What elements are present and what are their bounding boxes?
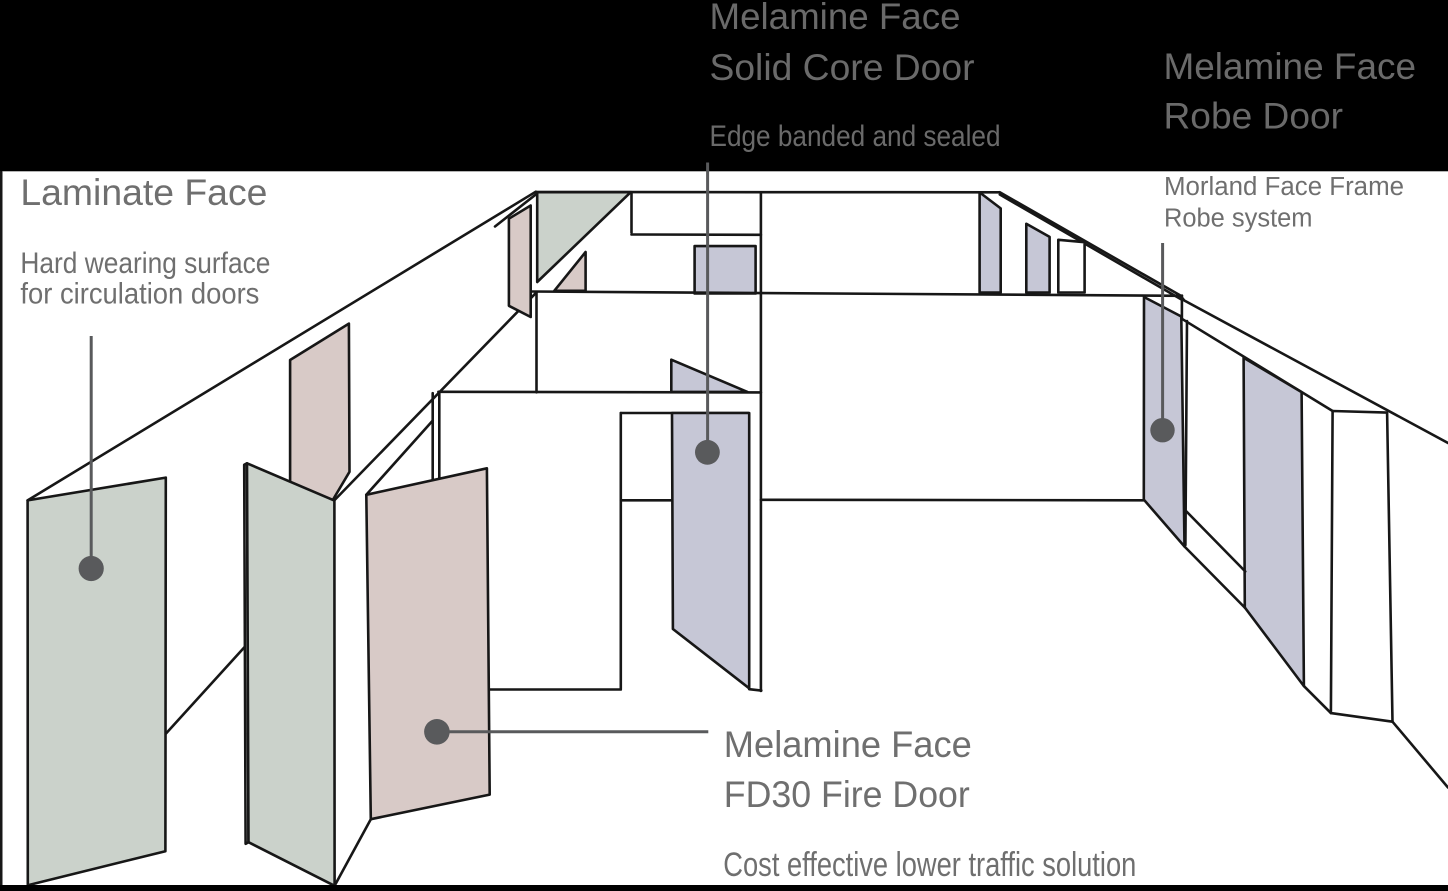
svg-text:Robe Door: Robe Door (1164, 96, 1344, 137)
svg-text:FD30 Fire Door: FD30 Fire Door (724, 774, 970, 815)
svg-text:Morland Face Frame: Morland Face Frame (1164, 173, 1404, 201)
svg-text:Hard wearing surface: Hard wearing surface (20, 247, 270, 280)
svg-text:Melamine Face: Melamine Face (710, 0, 961, 37)
svg-text:Cost effective lower traffic s: Cost effective lower traffic solution (723, 846, 1136, 884)
svg-text:Edge banded and sealed: Edge banded and sealed (710, 120, 1001, 153)
svg-text:Laminate Face: Laminate Face (20, 172, 267, 213)
svg-text:Melamine Face: Melamine Face (724, 724, 972, 765)
svg-text:for circulation doors: for circulation doors (20, 278, 259, 311)
svg-text:Melamine Face: Melamine Face (1164, 46, 1417, 87)
svg-text:Solid Core Door: Solid Core Door (710, 47, 975, 88)
svg-text:Robe system: Robe system (1164, 204, 1313, 232)
